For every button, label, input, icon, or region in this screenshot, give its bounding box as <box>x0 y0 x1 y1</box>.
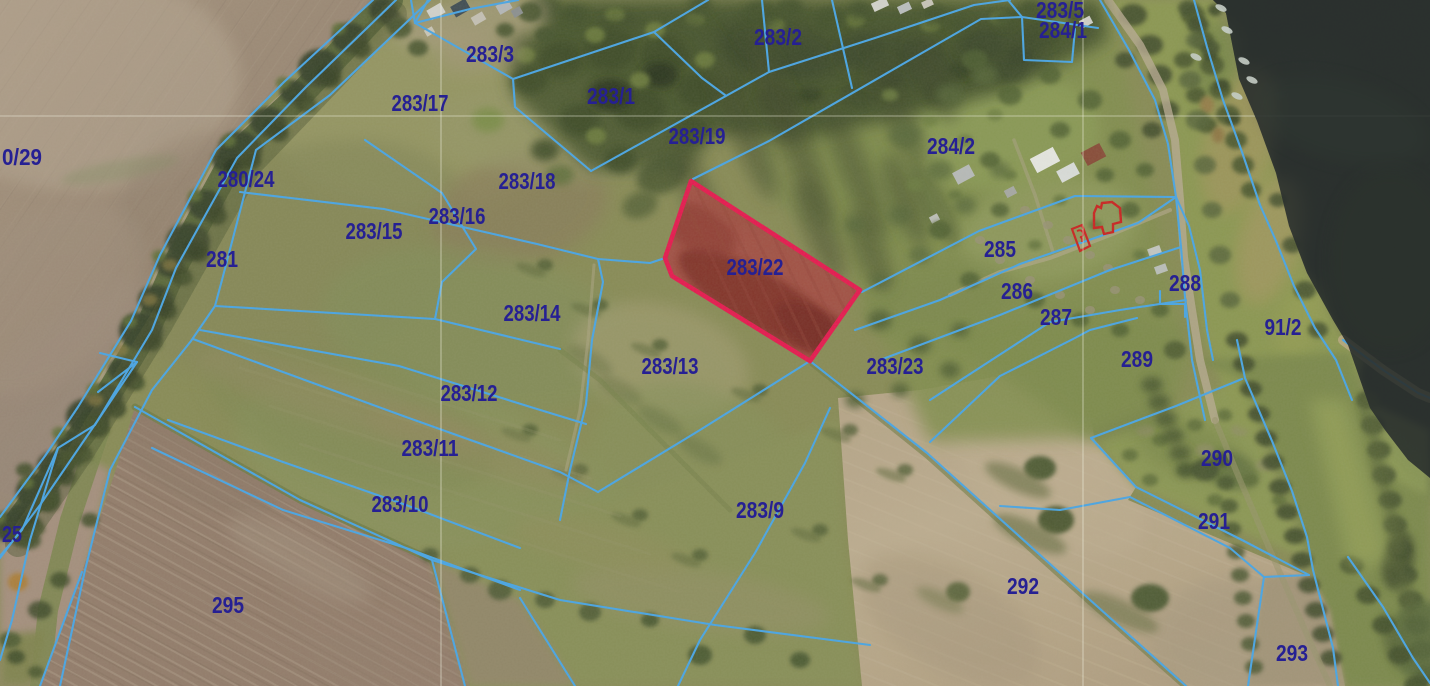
svg-text:285: 285 <box>984 236 1016 262</box>
svg-text:284/2: 284/2 <box>927 133 975 159</box>
svg-text:286: 286 <box>1001 278 1033 304</box>
svg-text:281: 281 <box>206 246 238 272</box>
svg-text:283/1: 283/1 <box>587 83 635 109</box>
svg-text:284/1: 284/1 <box>1039 17 1087 43</box>
svg-text:283/12: 283/12 <box>441 380 498 406</box>
svg-text:290: 290 <box>1201 445 1233 471</box>
svg-text:283/17: 283/17 <box>392 90 449 116</box>
svg-text:0/29: 0/29 <box>2 144 42 170</box>
svg-text:289: 289 <box>1121 346 1153 372</box>
svg-text:283/11: 283/11 <box>402 435 459 461</box>
svg-text:283/15: 283/15 <box>346 218 403 244</box>
svg-text:25: 25 <box>2 521 22 547</box>
svg-text:283/16: 283/16 <box>429 203 486 229</box>
svg-text:283/19: 283/19 <box>669 123 726 149</box>
svg-text:283/2: 283/2 <box>754 24 802 50</box>
svg-text:91/2: 91/2 <box>1265 314 1302 340</box>
svg-text:283/3: 283/3 <box>466 41 514 67</box>
svg-text:288: 288 <box>1169 270 1201 296</box>
svg-text:293: 293 <box>1276 640 1308 666</box>
svg-text:283/14: 283/14 <box>504 300 561 326</box>
svg-text:283/10: 283/10 <box>372 491 429 517</box>
svg-text:283/22: 283/22 <box>727 254 784 280</box>
svg-text:283/9: 283/9 <box>736 497 784 523</box>
svg-text:295: 295 <box>212 592 244 618</box>
svg-text:283/23: 283/23 <box>867 353 924 379</box>
svg-text:280/24: 280/24 <box>218 166 275 192</box>
svg-text:291: 291 <box>1198 508 1230 534</box>
svg-text:292: 292 <box>1007 573 1039 599</box>
svg-text:283/18: 283/18 <box>499 168 556 194</box>
svg-text:283/13: 283/13 <box>642 353 699 379</box>
svg-text:287: 287 <box>1040 304 1072 330</box>
